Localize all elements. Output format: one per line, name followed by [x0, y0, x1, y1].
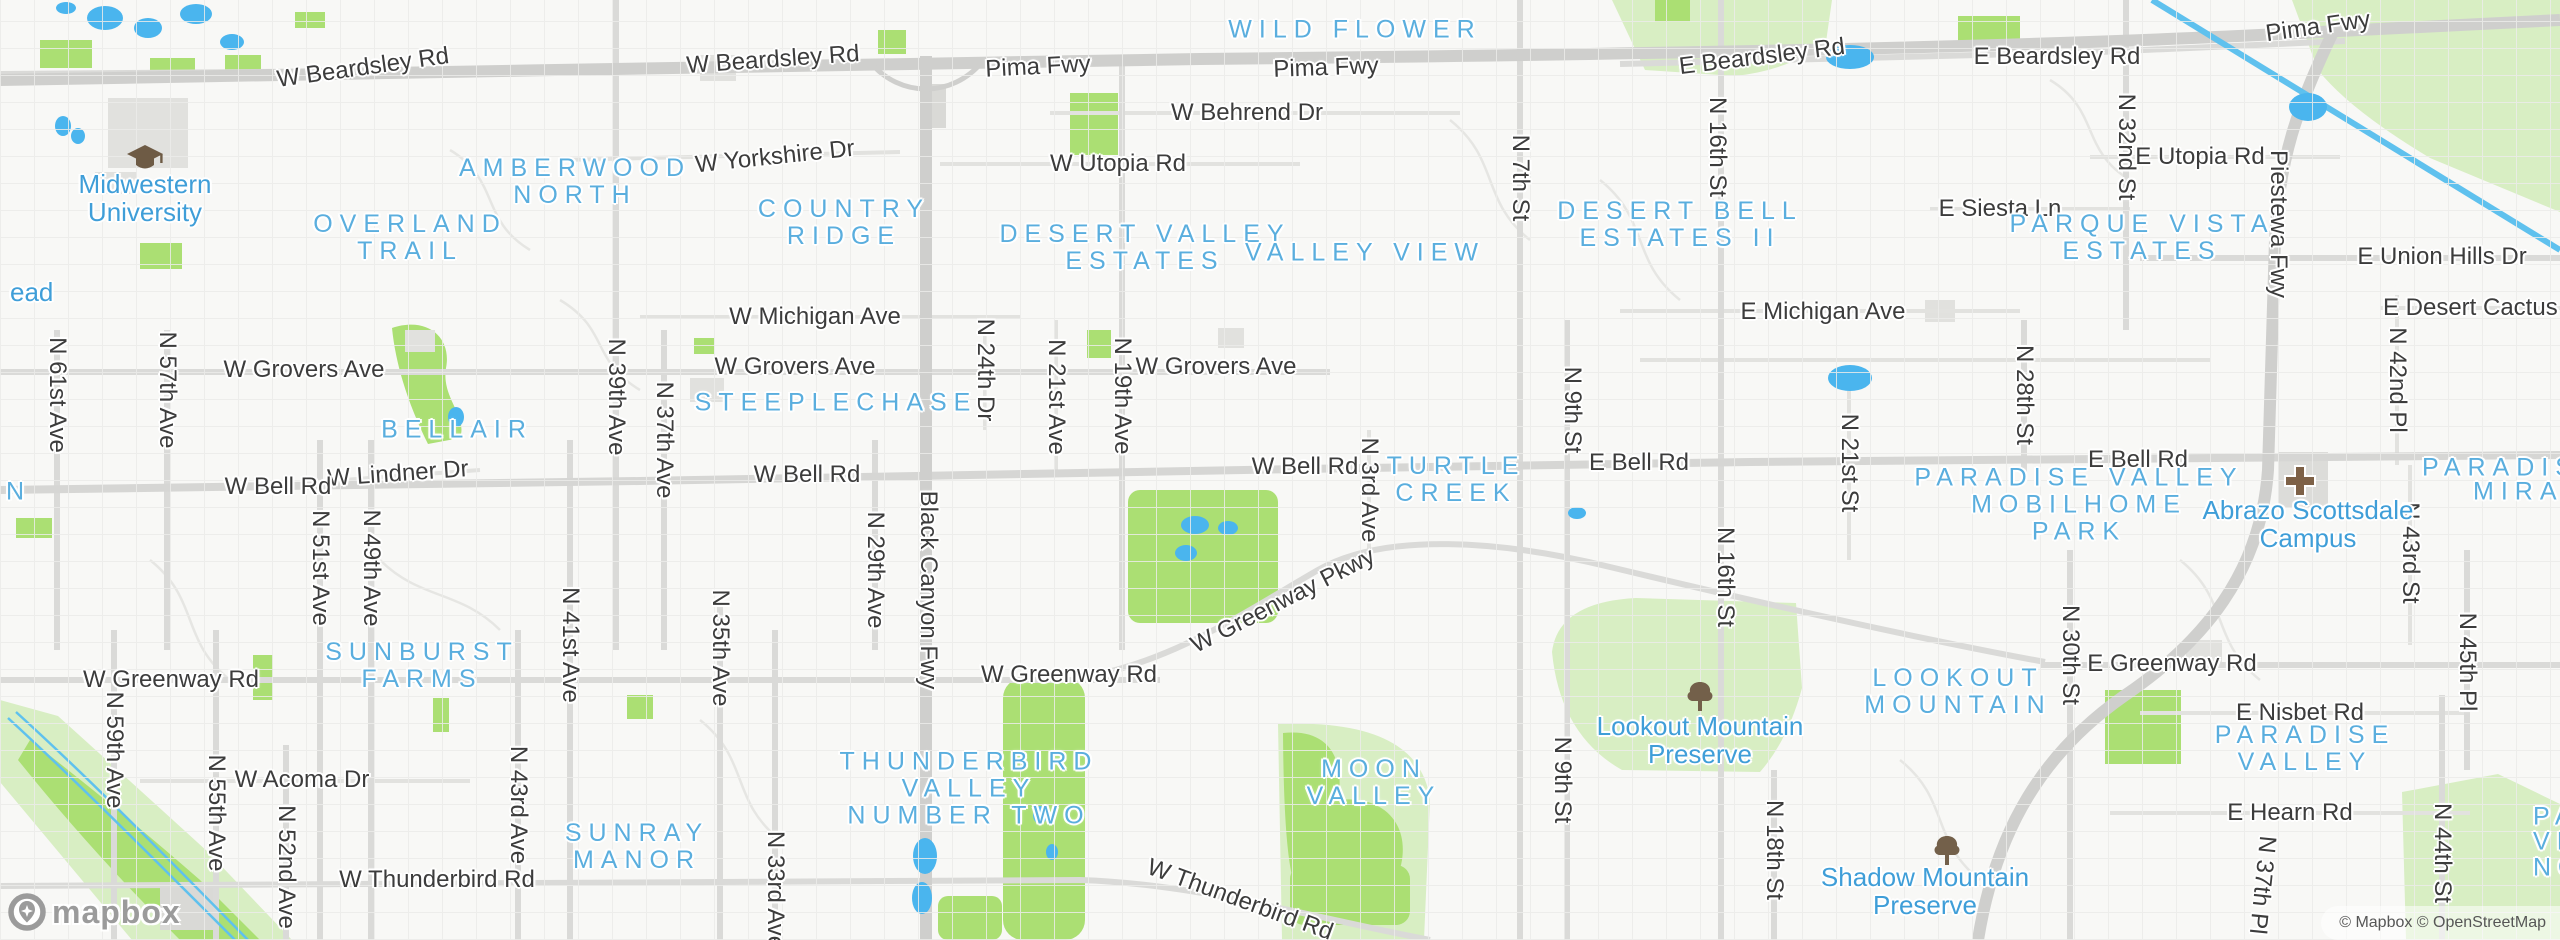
- vertical-street-label: N 21st St: [1835, 414, 1863, 513]
- street-label: W Greenway Rd: [981, 661, 1157, 689]
- edge-cut-label: PA: [2533, 804, 2560, 831]
- hospital-cross-icon: [2282, 463, 2318, 499]
- neighborhood-label: TURTLECREEK: [1387, 453, 1526, 507]
- vertical-street-label: N 44th St: [2428, 803, 2456, 903]
- vertical-street-label: N 18th St: [1760, 800, 1788, 900]
- street-label: E Beardsley Rd: [1974, 43, 2141, 71]
- street-label: W Acoma Dr: [235, 766, 370, 794]
- street-label: E Desert Cactus St: [2383, 294, 2560, 322]
- vertical-street-label: N 30th St: [2056, 605, 2084, 705]
- vertical-street-label: N 3rd Ave: [1355, 438, 1383, 543]
- street-label: W Grovers Ave: [224, 356, 385, 384]
- street-label: W Grovers Ave: [715, 353, 876, 381]
- attribution-bar[interactable]: © Mapbox © OpenStreetMap: [2321, 906, 2560, 940]
- neighborhood-label: THUNDERBIRDVALLEYNUMBER TWO: [840, 749, 1099, 830]
- neighborhood-label: DESERT BELLESTATES II: [1557, 198, 1803, 252]
- vertical-street-label: N 28th St: [2010, 345, 2038, 445]
- vertical-street-label: N 35th Ave: [706, 590, 734, 707]
- poi-label: Lookout MountainPreserve: [1597, 712, 1804, 768]
- neighborhood-label: VALLEY VIEW: [1245, 240, 1485, 267]
- neighborhood-label: LOOKOUTMOUNTAIN: [1864, 665, 2051, 719]
- edge-cut-label: NO: [2533, 855, 2560, 882]
- street-label: E Michigan Ave: [1741, 298, 1906, 326]
- vertical-street-label: N 39th Ave: [602, 339, 630, 456]
- street-label: W Bell Rd: [1252, 453, 1359, 481]
- street-label: W Grovers Ave: [1136, 353, 1297, 381]
- street-label: W Bell Rd: [754, 461, 861, 489]
- vertical-street-label: N 7th St: [1506, 135, 1534, 222]
- edge-cut-label: MIRAN: [2473, 479, 2560, 506]
- graduation-cap-icon: [125, 144, 165, 174]
- street-label: E Greenway Rd: [2087, 650, 2256, 678]
- vertical-street-label: N 9th St: [1558, 367, 1586, 454]
- edge-cut-label: ead: [10, 278, 53, 306]
- vertical-street-label: N 52nd Ave: [272, 805, 300, 929]
- neighborhood-label: OVERLANDTRAIL: [313, 211, 507, 265]
- vertical-street-label: N 61st Ave: [43, 337, 71, 453]
- vertical-street-label: N 49th Ave: [357, 510, 385, 627]
- vertical-street-label: N 42nd Pl: [2383, 327, 2411, 432]
- street-label: W Bell Rd: [225, 473, 332, 501]
- street-label: W Michigan Ave: [729, 303, 901, 331]
- neighborhood-label: MOONVALLEY: [1307, 756, 1442, 810]
- vertical-street-label: N 59th Ave: [100, 692, 128, 809]
- street-label: E Union Hills Dr: [2357, 243, 2526, 271]
- vertical-street-label: N 32nd St: [2112, 94, 2140, 201]
- street-label: E Hearn Rd: [2227, 799, 2352, 827]
- edge-cut-label: N: [6, 479, 31, 506]
- neighborhood-label: SUNRAYMANOR: [565, 820, 709, 874]
- edge-cut-label: VI: [2533, 829, 2560, 856]
- vertical-street-label: N 16th St: [1703, 97, 1731, 197]
- vertical-street-label: N 21st Ave: [1042, 339, 1070, 455]
- poi-label: Shadow MountainPreserve: [1821, 863, 2029, 919]
- poi-label: Abrazo ScottsdaleCampus: [2202, 496, 2413, 552]
- street-label: E Utopia Rd: [2135, 143, 2264, 171]
- street-label: Pima Fwy: [985, 50, 1092, 83]
- tree-icon: [1932, 835, 1962, 869]
- neighborhood-label: PARADISEVALLEY: [2215, 722, 2396, 776]
- vertical-street-label: N 43rd Ave: [504, 746, 532, 864]
- street-label: W Greenway Rd: [83, 666, 259, 694]
- neighborhood-label: STEEPLECHASE: [695, 390, 978, 417]
- vertical-street-label: N 57th Ave: [153, 332, 181, 449]
- mapbox-logo-icon: [8, 893, 46, 931]
- street-label: E Bell Rd: [1589, 449, 1689, 477]
- neighborhood-label: COUNTRYRIDGE: [758, 196, 930, 250]
- mapbox-logo-wordmark: mapbox: [52, 894, 181, 931]
- vertical-street-label: N 55th Ave: [202, 755, 230, 872]
- vertical-street-label: N 29th Ave: [861, 512, 889, 629]
- vertical-street-label: N 51st Ave: [306, 510, 334, 626]
- mapbox-logo[interactable]: mapbox: [8, 893, 181, 931]
- neighborhood-label: WILD FLOWER: [1228, 17, 1481, 44]
- neighborhood-label: AMBERWOODNORTH: [459, 155, 691, 209]
- neighborhood-label: BELLAIR: [381, 417, 533, 444]
- neighborhood-label: SUNBURSTFARMS: [325, 639, 519, 693]
- vertical-street-label: N 16th St: [1711, 527, 1739, 627]
- vertical-street-label: N 45th Pl: [2453, 613, 2481, 712]
- vertical-street-label: N 19th Ave: [1108, 338, 1136, 455]
- map-canvas[interactable]: W Beardsley RdW Beardsley RdPima FwyPima…: [0, 0, 2560, 940]
- poi-label: MidwesternUniversity: [79, 170, 212, 226]
- tree-icon: [1685, 681, 1715, 715]
- vertical-street-label: N 9th St: [1548, 737, 1576, 824]
- street-label: W Thunderbird Rd: [339, 866, 535, 894]
- vertical-street-label: N 41st Ave: [556, 587, 584, 703]
- vertical-street-label: N 37th Ave: [650, 382, 678, 499]
- street-label: W Behrend Dr: [1171, 99, 1323, 127]
- street-label: W Utopia Rd: [1050, 150, 1186, 178]
- neighborhood-label: PARADISE VALLEYMOBILHOMEPARK: [1914, 465, 2243, 546]
- vertical-street-label: Black Canyon Fwy: [914, 491, 942, 690]
- vertical-street-label: N 33rd Ave: [761, 831, 789, 940]
- street-label: Pima Fwy: [1273, 52, 1379, 84]
- neighborhood-label: PARQUE VISTAESTATES: [2009, 211, 2274, 265]
